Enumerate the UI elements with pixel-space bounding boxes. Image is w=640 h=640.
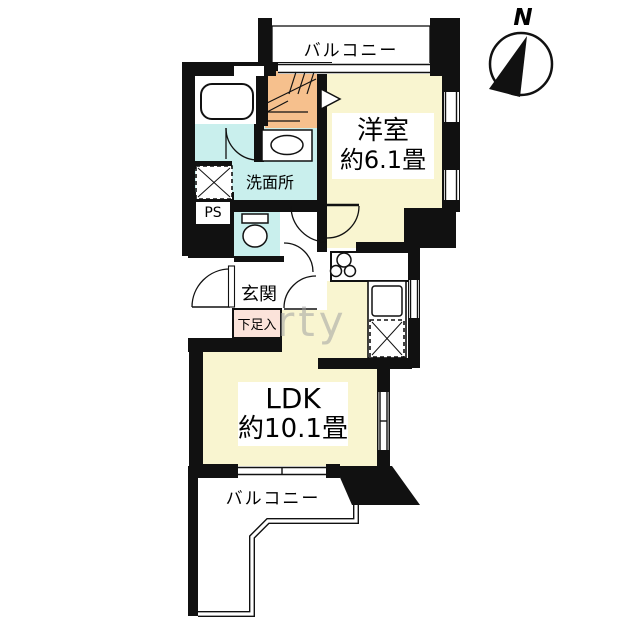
wall-notch: [234, 66, 264, 76]
shoe-cabinet-box: 下足入: [232, 308, 282, 339]
ldk-label-box: LDK 約10.1畳: [238, 382, 348, 446]
bedroom-size: 約6.1畳: [340, 147, 426, 175]
pipe-space-box: PS: [194, 200, 232, 226]
toilet-icon: [242, 214, 268, 247]
wall-toilet-bottom: [234, 256, 284, 262]
wall-bottom-right: [326, 464, 340, 478]
wall-washroom-bottom: [228, 200, 317, 212]
window-bedroom-east-1: [444, 92, 459, 122]
washroom-label: 洗面所: [230, 169, 310, 193]
watermark-text: rty: [277, 297, 348, 346]
window-bedroom-north: [278, 63, 430, 74]
wall-bedroom-bottom: [356, 242, 418, 252]
refrigerator-space-icon: [370, 320, 404, 357]
balcony-railing: [198, 505, 356, 614]
ldk-size: 約10.1畳: [238, 415, 348, 445]
wall-balcony-bottom-left: [188, 466, 198, 616]
wall-corner-block: [335, 466, 420, 505]
ldk-name: LDK: [265, 383, 321, 415]
floorplan-canvas: バルコニー 洋室 約6.1畳 洗面所 PS 玄関 下足入 LDK 約10.1畳 …: [0, 0, 640, 640]
window-ldk-south: [238, 466, 326, 476]
wall-under-fridge: [318, 358, 412, 369]
window-bedroom-east-2: [444, 170, 459, 200]
shoe-cabinet-label: 下足入: [237, 314, 276, 333]
bedroom-label-box: 洋室 約6.1畳: [332, 113, 434, 179]
wall-bottom-left: [198, 464, 238, 478]
washbasin-icon: [262, 130, 312, 161]
balcony-top-label: バルコニー: [291, 36, 411, 61]
washing-machine-space-icon: [196, 166, 232, 199]
compass: [489, 33, 552, 97]
compass-north-label: N: [506, 5, 540, 31]
kitchen-sink-icon: [372, 286, 402, 316]
bedroom-name: 洋室: [357, 117, 409, 147]
balcony-bottom-label: バルコニー: [213, 484, 333, 509]
window-ldk-east: [379, 392, 389, 450]
wall-ldk-left: [189, 345, 203, 466]
pipe-space-label: PS: [204, 205, 221, 221]
bathtub-icon: [201, 84, 253, 119]
window-kitchen-east: [409, 280, 419, 318]
